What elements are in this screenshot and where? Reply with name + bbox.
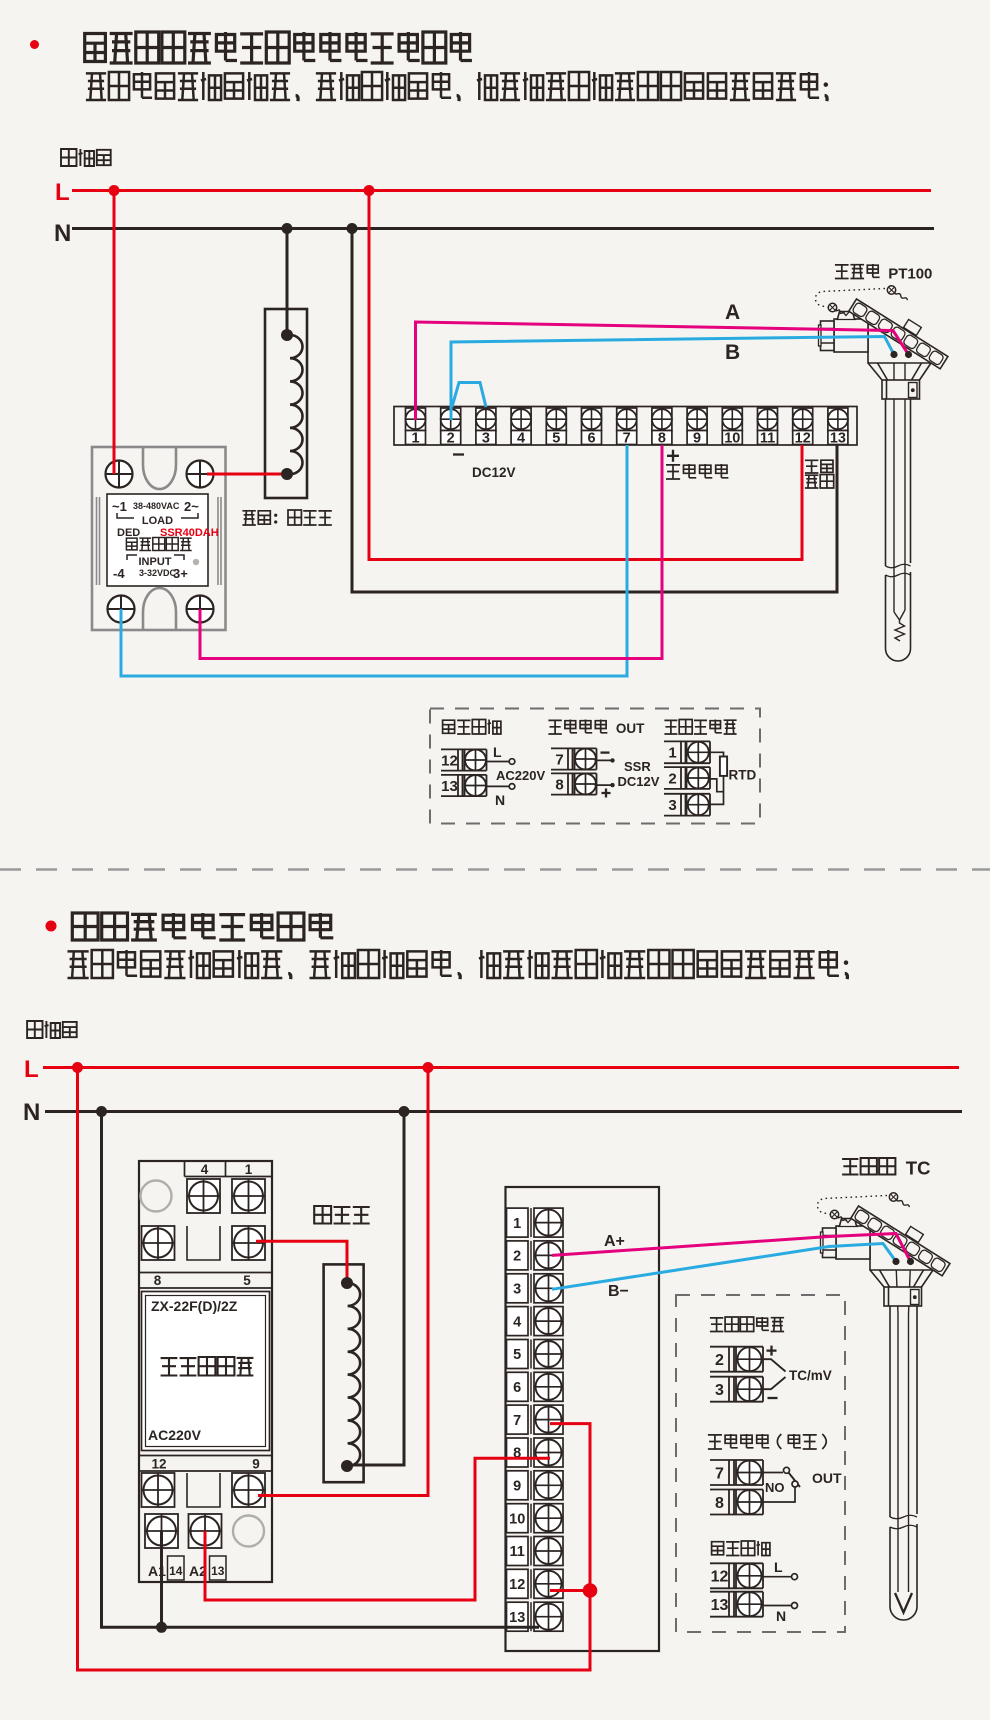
svg-text:L: L xyxy=(24,1056,39,1083)
svg-text:L: L xyxy=(55,179,70,206)
svg-text:9: 9 xyxy=(513,1479,521,1495)
svg-text:LOAD: LOAD xyxy=(142,515,173,527)
svg-text:OUT: OUT xyxy=(616,721,645,736)
svg-text:2: 2 xyxy=(715,1352,724,1369)
svg-text:OUT: OUT xyxy=(812,1470,842,1486)
svg-text:3: 3 xyxy=(513,1282,521,1298)
svg-text:DC12V: DC12V xyxy=(618,774,660,789)
svg-text:4: 4 xyxy=(517,431,525,447)
svg-text:2: 2 xyxy=(447,431,455,447)
svg-text:6: 6 xyxy=(587,431,595,447)
svg-text:AC220V: AC220V xyxy=(496,768,545,783)
svg-text:N: N xyxy=(54,220,71,247)
svg-text:13: 13 xyxy=(830,431,846,447)
svg-text:9: 9 xyxy=(693,431,701,447)
svg-text:14: 14 xyxy=(169,1564,183,1578)
svg-text:3: 3 xyxy=(668,797,676,814)
svg-text:2: 2 xyxy=(668,770,676,787)
svg-text:8: 8 xyxy=(154,1273,162,1288)
svg-text:3-32VDC: 3-32VDC xyxy=(139,568,177,578)
svg-text:A: A xyxy=(725,301,740,324)
svg-text:-4: -4 xyxy=(113,566,125,581)
svg-text:13: 13 xyxy=(211,1564,225,1578)
svg-text:1: 1 xyxy=(245,1162,253,1177)
svg-text:TC/mV: TC/mV xyxy=(789,1368,832,1383)
svg-text:7: 7 xyxy=(623,431,631,447)
svg-text:10: 10 xyxy=(509,1511,525,1527)
svg-text:12: 12 xyxy=(151,1457,166,1472)
svg-text:8: 8 xyxy=(715,1495,724,1512)
svg-text:11: 11 xyxy=(510,1544,525,1560)
svg-text:3: 3 xyxy=(482,431,490,447)
svg-text:6: 6 xyxy=(513,1380,521,1396)
svg-text:7: 7 xyxy=(513,1413,521,1429)
svg-text:NO: NO xyxy=(765,1480,785,1495)
svg-text:12: 12 xyxy=(509,1577,525,1593)
svg-text:3+: 3+ xyxy=(173,566,188,581)
svg-text:L: L xyxy=(493,744,502,760)
svg-text:B−: B− xyxy=(608,1283,629,1300)
svg-text:12: 12 xyxy=(795,431,811,447)
svg-text:4: 4 xyxy=(513,1314,521,1330)
svg-text:AC220V: AC220V xyxy=(148,1427,202,1443)
svg-text:2: 2 xyxy=(513,1249,521,1265)
svg-text:A1: A1 xyxy=(148,1563,166,1579)
svg-text:10: 10 xyxy=(724,431,740,447)
svg-text:11: 11 xyxy=(760,431,775,447)
svg-text:13: 13 xyxy=(509,1610,525,1626)
svg-text:A+: A+ xyxy=(604,1233,625,1250)
svg-text:SSR: SSR xyxy=(624,759,651,774)
svg-text:7: 7 xyxy=(715,1465,724,1482)
svg-text:PT100: PT100 xyxy=(888,266,932,283)
svg-text:DC12V: DC12V xyxy=(472,465,516,480)
svg-text:9: 9 xyxy=(252,1457,260,1472)
svg-text:12: 12 xyxy=(441,752,458,769)
svg-text:N: N xyxy=(776,1608,786,1624)
svg-text:1: 1 xyxy=(668,745,676,762)
svg-text:4: 4 xyxy=(201,1162,209,1177)
svg-text:3: 3 xyxy=(715,1382,724,1399)
svg-text:7: 7 xyxy=(555,751,563,768)
svg-text:N: N xyxy=(23,1099,40,1126)
svg-text:N: N xyxy=(495,792,505,808)
svg-text:8: 8 xyxy=(555,776,563,793)
svg-text:5: 5 xyxy=(552,431,560,447)
svg-text:12: 12 xyxy=(711,1569,729,1586)
svg-text:5: 5 xyxy=(243,1273,251,1288)
svg-text:TC: TC xyxy=(906,1158,931,1179)
svg-text:2~: 2~ xyxy=(184,499,199,514)
svg-text:RTD: RTD xyxy=(729,768,757,783)
svg-text:INPUT: INPUT xyxy=(139,556,172,568)
svg-text:13: 13 xyxy=(441,778,458,795)
svg-text:5: 5 xyxy=(513,1347,521,1363)
svg-text:ZX-22F(D)/2Z: ZX-22F(D)/2Z xyxy=(151,1298,238,1314)
svg-text:1: 1 xyxy=(513,1216,521,1232)
svg-text:L: L xyxy=(774,1559,783,1575)
svg-text:13: 13 xyxy=(711,1597,729,1614)
svg-text:38-480VAC: 38-480VAC xyxy=(133,501,180,511)
svg-text:B: B xyxy=(725,341,740,364)
svg-text:DED: DED xyxy=(117,527,140,539)
svg-text:1: 1 xyxy=(411,431,419,447)
svg-text:~1: ~1 xyxy=(112,499,127,514)
svg-text:8: 8 xyxy=(658,431,666,447)
